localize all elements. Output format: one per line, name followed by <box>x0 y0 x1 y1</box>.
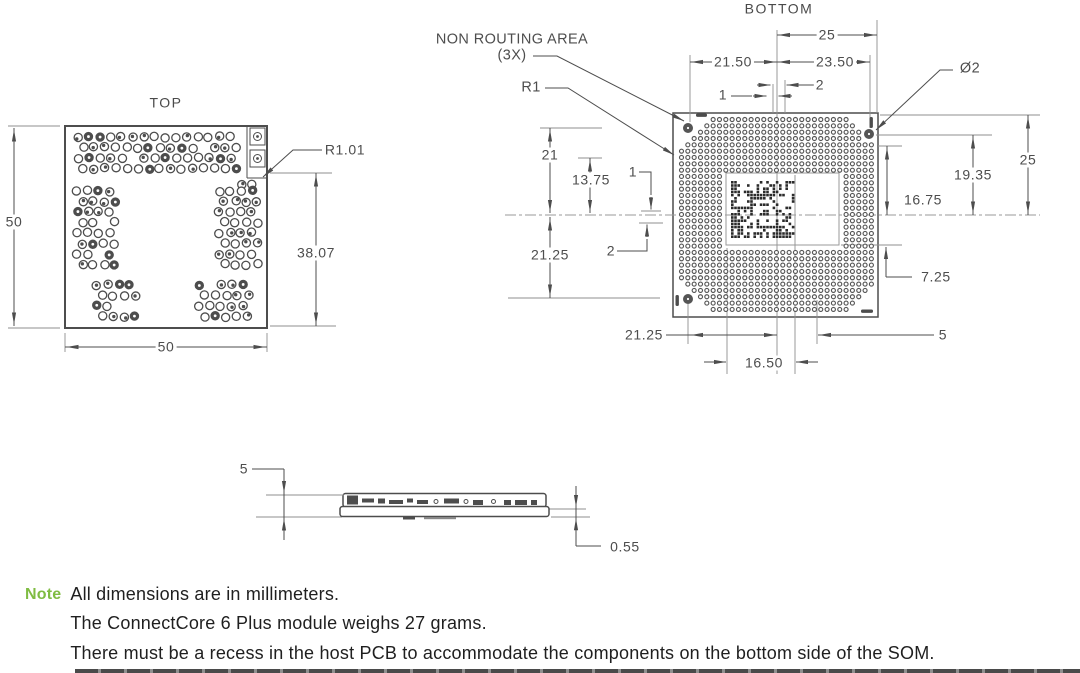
edge-slot <box>696 114 707 117</box>
dim-top-corner-radius: R1.01 <box>323 143 367 158</box>
dim-bottom-left-offset-1: 1 <box>627 165 639 180</box>
mounting-hole-center <box>687 127 689 129</box>
non-routing-area-qty: (3X) <box>496 49 529 64</box>
dim-bottom-top-offset-2: 2 <box>814 78 826 93</box>
mounting-hole-center <box>868 133 870 135</box>
dim-side-standoff: 0.55 <box>608 540 642 555</box>
dim-bottom-left-offset-2: 2 <box>605 244 617 259</box>
dim-bottom-bottom-mid: 16.50 <box>743 356 785 371</box>
dim-bottom-right-low: 7.25 <box>919 270 953 285</box>
radius-r1-label: R1 <box>519 81 542 96</box>
hole-diameter-label: Ø2 <box>958 62 982 77</box>
edge-slot <box>861 310 873 313</box>
mechanical-drawing-page: TOP BOTTOM 50 50 38.07 R1.01 NON ROUTING… <box>0 0 1080 673</box>
top-view-title: TOP <box>147 96 184 111</box>
edge-slot <box>676 295 679 306</box>
non-routing-area-label: NON ROUTING AREA <box>434 33 590 48</box>
dim-top-component-height: 38.07 <box>295 246 337 261</box>
dim-bottom-right-hole: 19.35 <box>952 168 994 183</box>
top-corner-component-dot <box>256 135 259 138</box>
dim-top-height: 50 <box>4 215 25 230</box>
dim-bottom-top-offset-1: 1 <box>717 88 729 103</box>
dim-bottom-left-upper: 21 <box>540 148 561 163</box>
note-line-2: The ConnectCore 6 Plus module weighs 27 … <box>70 609 934 638</box>
edge-slot <box>870 117 873 128</box>
note-lines: All dimensions are in millimeters. The C… <box>70 580 934 668</box>
dim-bottom-top-left: 21.50 <box>712 55 754 70</box>
dim-bottom-right-half: 25 <box>1018 153 1039 168</box>
dim-bottom-top-half-width: 25 <box>817 28 838 43</box>
dim-bottom-left-lower: 21.25 <box>529 248 571 263</box>
note-line-1: All dimensions are in millimeters. <box>70 580 934 609</box>
bottom-view-title: BOTTOM <box>743 2 816 17</box>
dim-top-width: 50 <box>156 340 177 355</box>
dim-bottom-bottom-right: 5 <box>937 328 949 343</box>
top-corner-component-dot <box>256 157 259 160</box>
note-line-3: There must be a recess in the host PCB t… <box>70 639 934 668</box>
clipped-content-bar <box>75 669 1080 673</box>
dim-bottom-bottom-left: 21.25 <box>623 328 665 343</box>
mounting-hole-center <box>687 298 689 300</box>
dim-bottom-left-mid: 13.75 <box>570 173 612 188</box>
dim-bottom-right-inner: 16.75 <box>902 193 944 208</box>
dim-side-total-height: 5 <box>238 462 250 477</box>
side-view-bottom-plate <box>340 507 549 517</box>
side-view-pad <box>424 517 456 519</box>
note-label: Note <box>25 580 61 609</box>
note-block: Note All dimensions are in millimeters. … <box>25 580 935 668</box>
dim-bottom-top-right: 23.50 <box>814 55 856 70</box>
side-view-pad <box>403 517 415 520</box>
